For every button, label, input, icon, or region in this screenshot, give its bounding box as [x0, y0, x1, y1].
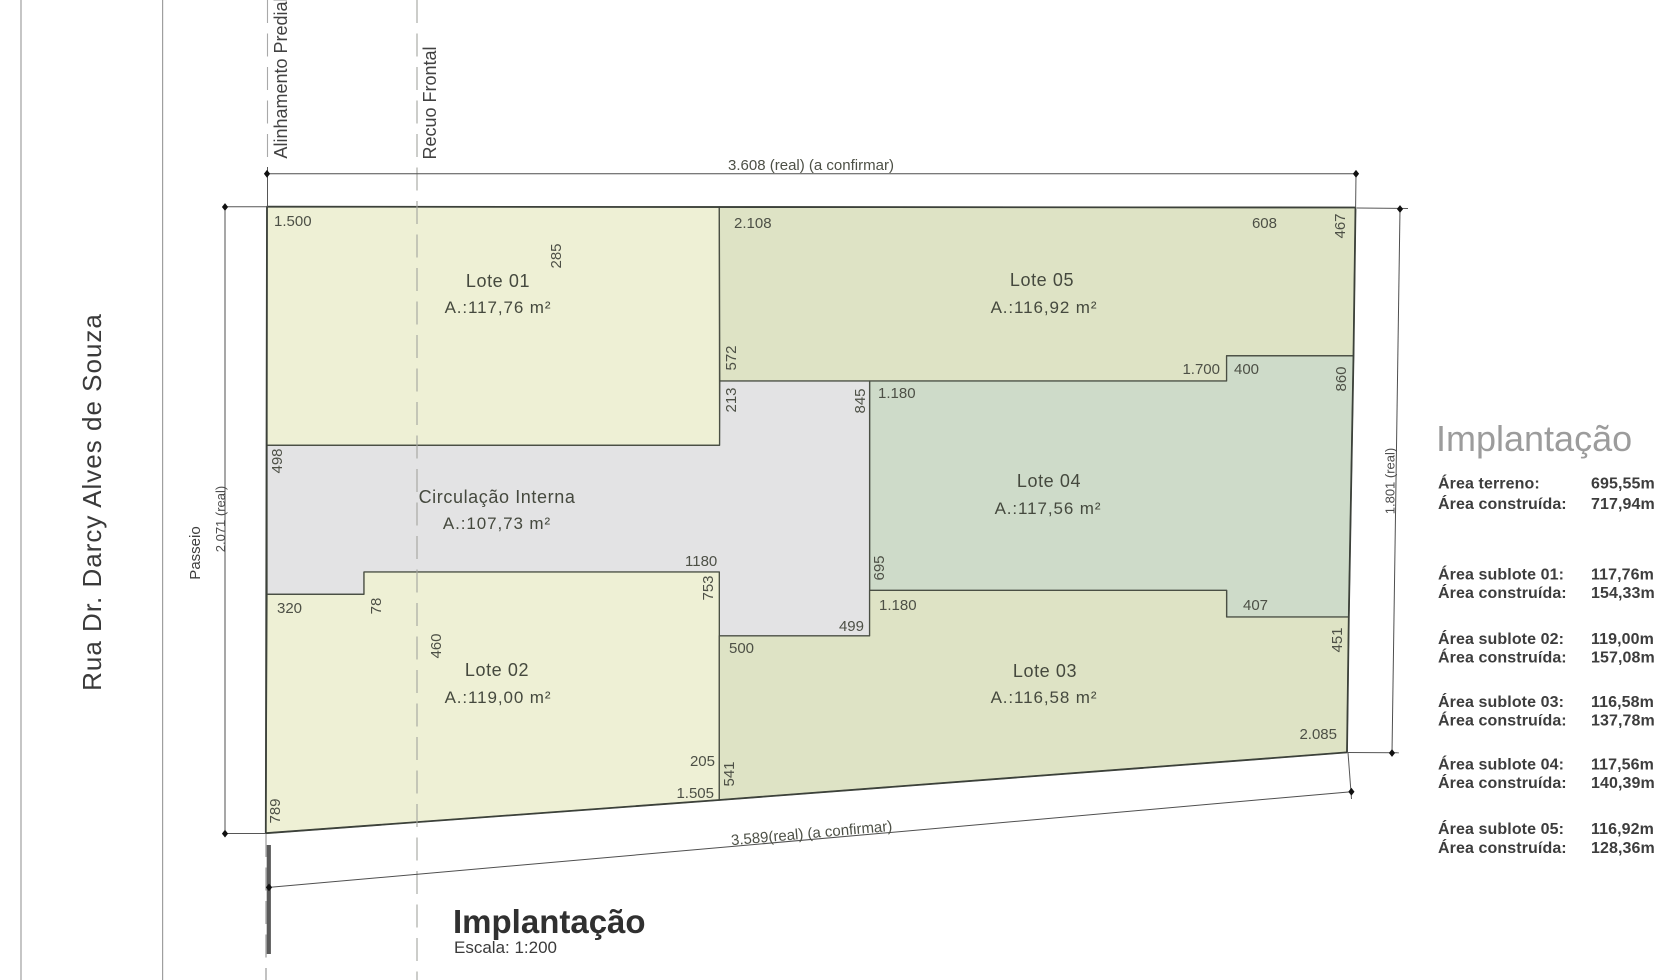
- svg-text:500: 500: [729, 640, 754, 657]
- svg-text:Rua Dr. Darcy Alves de Souza: Rua Dr. Darcy Alves de Souza: [77, 313, 107, 691]
- svg-text:Área construída:: Área construída:: [1438, 583, 1567, 602]
- svg-text:Área construída:: Área construída:: [1438, 710, 1567, 729]
- svg-text:572: 572: [723, 345, 740, 370]
- svg-text:789: 789: [267, 798, 284, 823]
- svg-text:Implantação: Implantação: [1436, 418, 1632, 459]
- svg-text:Alinhamento Predial: Alinhamento Predial: [271, 0, 291, 159]
- svg-text:695,55m: 695,55m: [1591, 476, 1655, 493]
- svg-text:154,33m: 154,33m: [1591, 585, 1655, 602]
- svg-text:860: 860: [1333, 366, 1350, 391]
- svg-text:116,58m: 116,58m: [1591, 694, 1654, 711]
- svg-text:140,39m: 140,39m: [1591, 775, 1655, 792]
- svg-text:Área construída:: Área construída:: [1438, 494, 1567, 513]
- svg-text:157,08m: 157,08m: [1591, 650, 1655, 667]
- svg-text:Lote 01: Lote 01: [466, 271, 530, 291]
- svg-text:A.:116,92 m²: A.:116,92 m²: [991, 298, 1098, 317]
- svg-text:Recuo Frontal: Recuo Frontal: [420, 46, 440, 159]
- svg-text:119,00m: 119,00m: [1591, 631, 1654, 648]
- svg-text:Passeio: Passeio: [187, 526, 204, 579]
- svg-text:205: 205: [690, 753, 715, 770]
- svg-text:460: 460: [428, 633, 445, 658]
- svg-text:1.505: 1.505: [676, 785, 714, 802]
- svg-text:128,36m: 128,36m: [1591, 840, 1655, 857]
- svg-text:717,94m: 717,94m: [1591, 496, 1655, 513]
- svg-text:451: 451: [1329, 627, 1346, 652]
- svg-text:Lote 03: Lote 03: [1013, 661, 1077, 681]
- svg-text:695: 695: [871, 555, 888, 580]
- svg-text:467: 467: [1332, 213, 1349, 238]
- svg-text:Área sublote 01:: Área sublote 01:: [1438, 565, 1564, 584]
- svg-text:Lote 04: Lote 04: [1017, 471, 1081, 491]
- svg-text:1.180: 1.180: [879, 597, 917, 614]
- svg-text:2.085: 2.085: [1299, 726, 1337, 743]
- svg-text:A.:107,73 m²: A.:107,73 m²: [443, 514, 551, 533]
- svg-text:Escala: 1:200: Escala: 1:200: [454, 938, 557, 957]
- svg-text:A.:117,56 m²: A.:117,56 m²: [995, 499, 1102, 518]
- svg-text:213: 213: [723, 387, 740, 412]
- svg-text:2.108: 2.108: [734, 215, 772, 232]
- svg-text:400: 400: [1234, 361, 1259, 378]
- svg-text:845: 845: [852, 388, 869, 413]
- svg-text:78: 78: [368, 598, 385, 615]
- svg-text:A.:119,00 m²: A.:119,00 m²: [445, 688, 552, 707]
- svg-text:Circulação Interna: Circulação Interna: [419, 487, 576, 507]
- svg-text:1.180: 1.180: [878, 385, 916, 402]
- svg-text:Área terreno:: Área terreno:: [1438, 474, 1540, 493]
- svg-text:285: 285: [548, 243, 565, 268]
- svg-text:A.:116,58 m²: A.:116,58 m²: [991, 688, 1098, 707]
- svg-text:Área construída:: Área construída:: [1438, 648, 1567, 667]
- svg-text:Área sublote 03:: Área sublote 03:: [1438, 692, 1564, 711]
- svg-text:1.500: 1.500: [274, 213, 312, 230]
- svg-text:1.700: 1.700: [1182, 361, 1220, 378]
- svg-text:Implantação: Implantação: [453, 903, 646, 940]
- svg-text:2.071 (real): 2.071 (real): [213, 486, 228, 552]
- svg-text:117,76m: 117,76m: [1591, 567, 1654, 584]
- svg-text:Área construída:: Área construída:: [1438, 838, 1567, 857]
- svg-text:541: 541: [721, 761, 738, 786]
- svg-text:1180: 1180: [685, 553, 717, 570]
- svg-text:Lote 02: Lote 02: [465, 660, 529, 680]
- svg-text:Área sublote 04:: Área sublote 04:: [1438, 755, 1564, 774]
- svg-text:3.608 (real) (a confirmar): 3.608 (real) (a confirmar): [728, 157, 894, 174]
- svg-text:A.:117,76 m²: A.:117,76 m²: [445, 298, 552, 317]
- svg-text:137,78m: 137,78m: [1591, 712, 1655, 729]
- svg-text:Área sublote 02:: Área sublote 02:: [1438, 629, 1564, 648]
- svg-text:320: 320: [277, 600, 302, 617]
- svg-text:498: 498: [269, 448, 286, 473]
- svg-text:117,56m: 117,56m: [1591, 757, 1654, 774]
- svg-text:Lote 05: Lote 05: [1010, 270, 1074, 290]
- svg-text:499: 499: [839, 618, 864, 635]
- svg-text:Área construída:: Área construída:: [1438, 773, 1567, 792]
- svg-text:608: 608: [1252, 215, 1277, 232]
- svg-text:753: 753: [700, 575, 717, 600]
- svg-text:1.801 (real): 1.801 (real): [1383, 448, 1398, 514]
- svg-text:116,92m: 116,92m: [1591, 821, 1654, 838]
- svg-text:Área sublote 05:: Área sublote 05:: [1438, 819, 1564, 838]
- svg-text:407: 407: [1243, 597, 1268, 614]
